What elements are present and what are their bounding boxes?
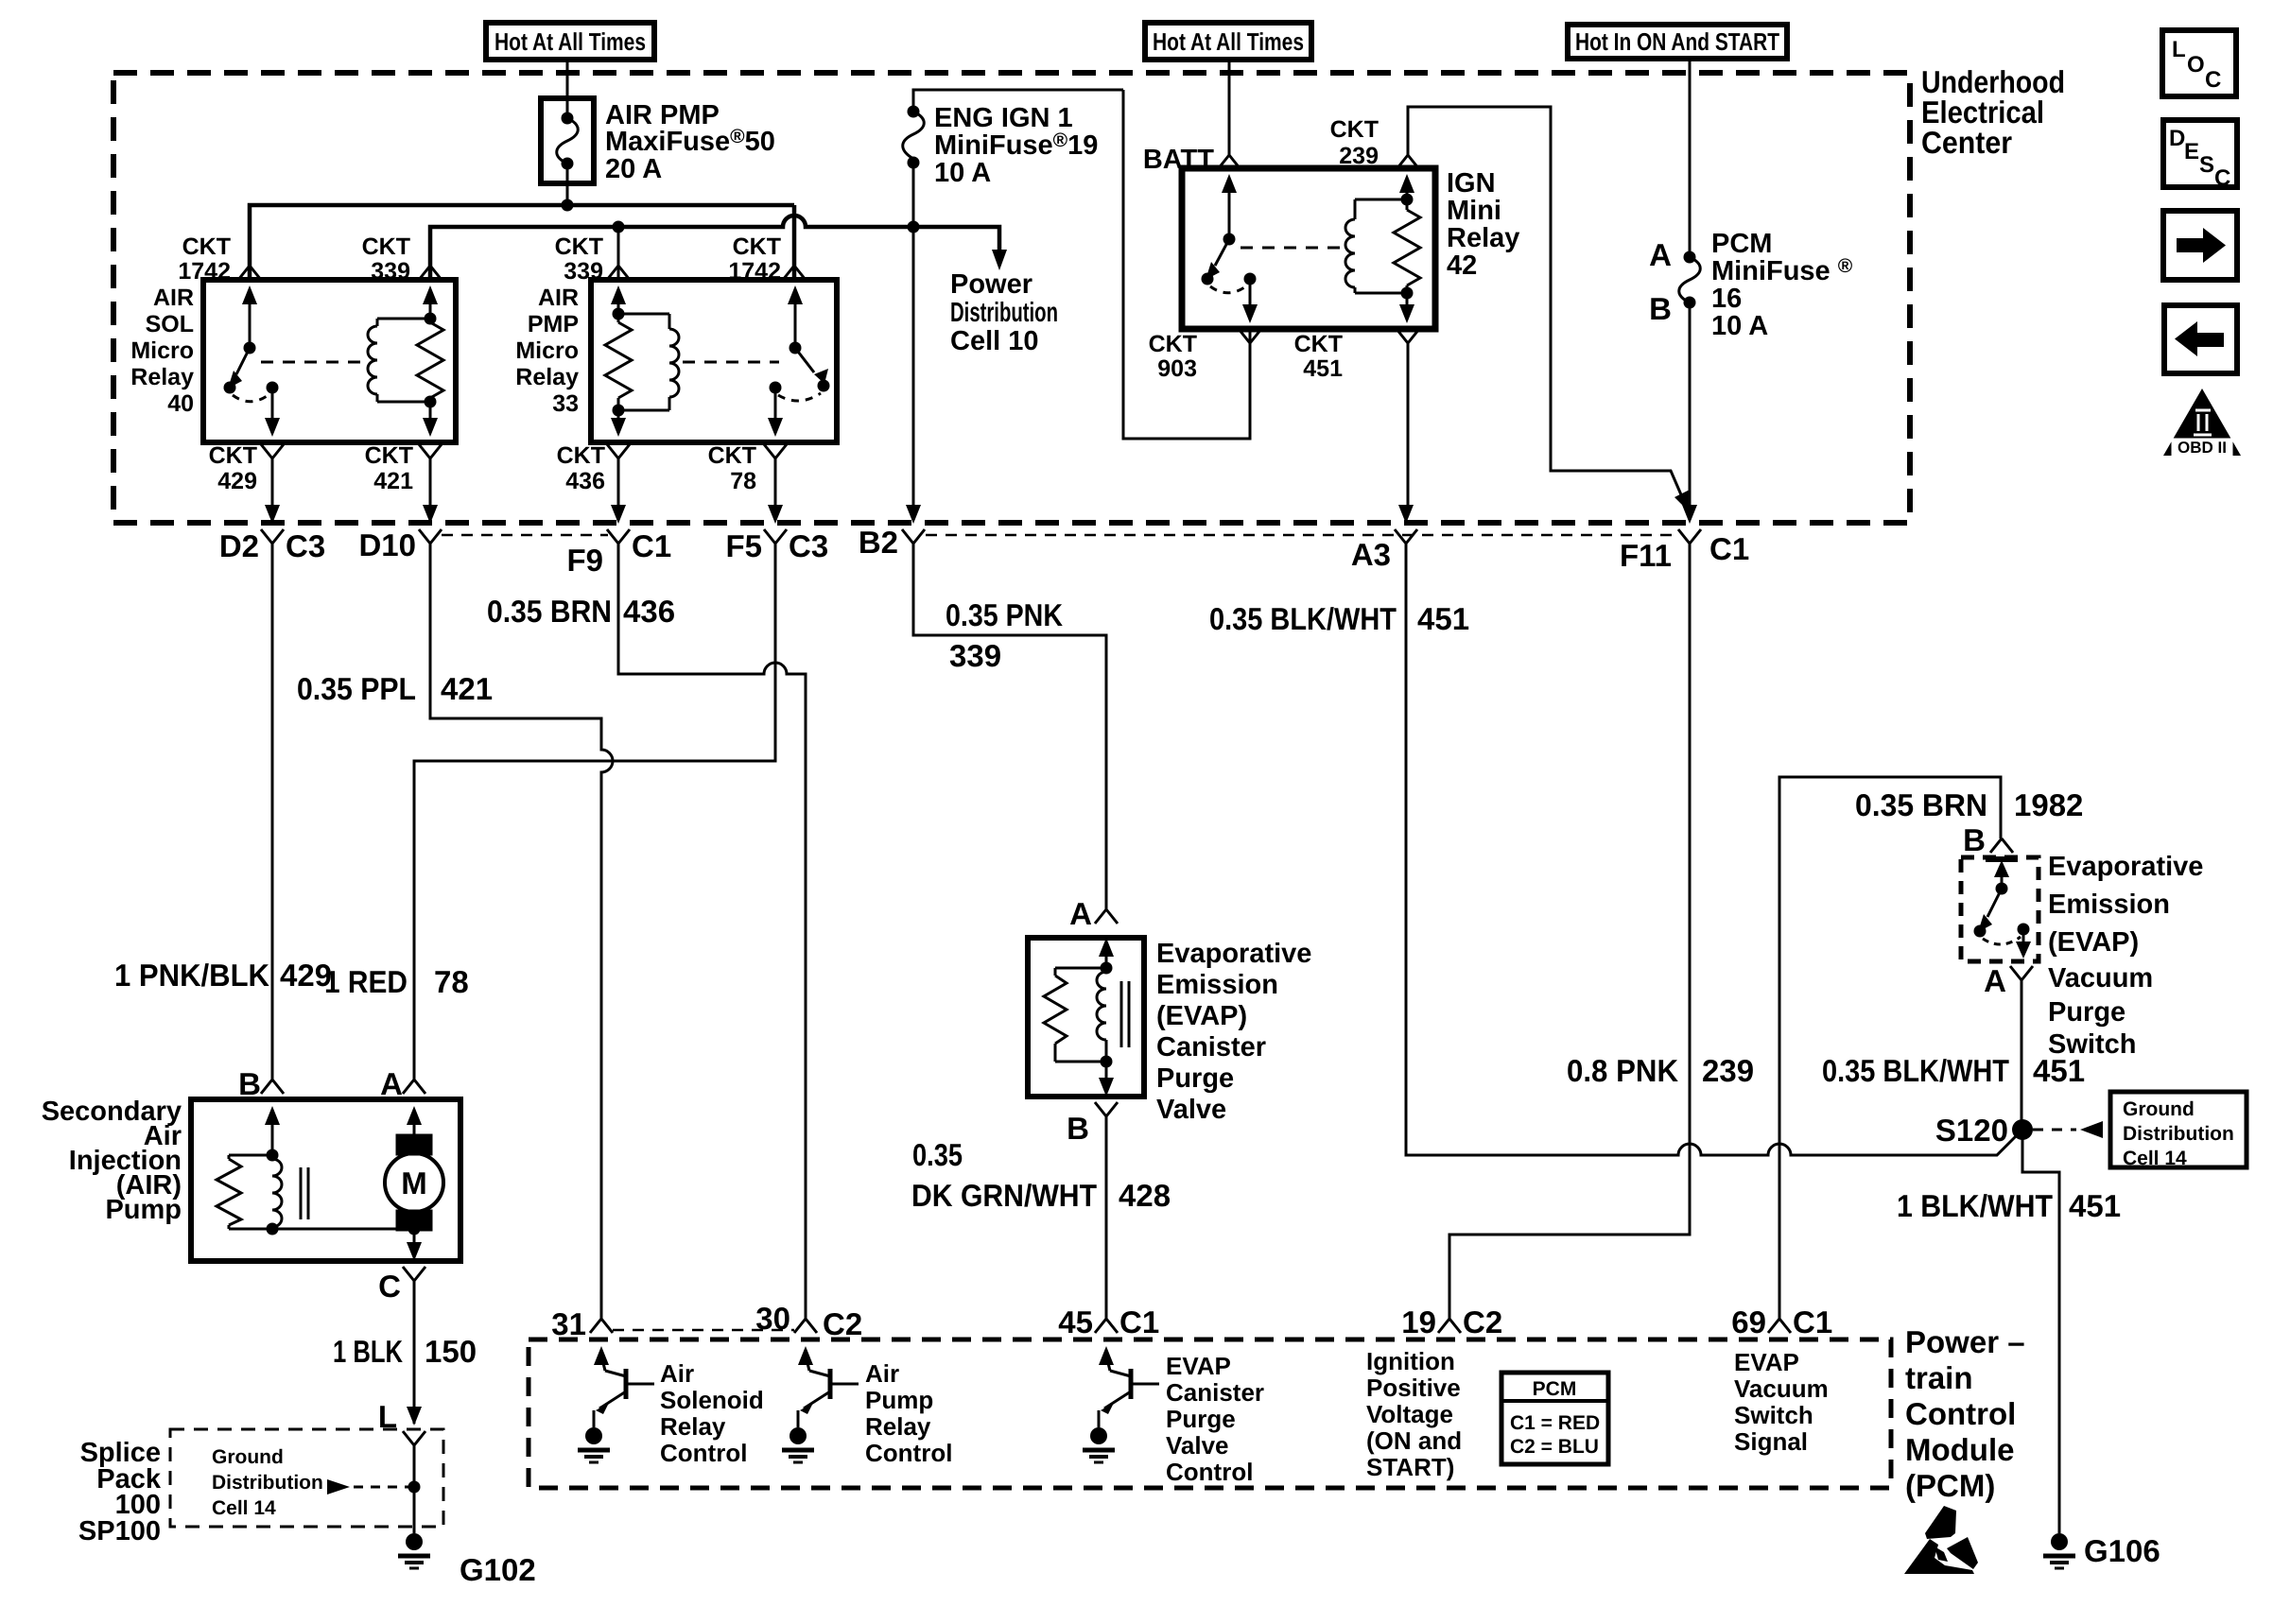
svg-text:Solenoid: Solenoid <box>660 1386 764 1414</box>
svg-text:Canister: Canister <box>1166 1378 1264 1407</box>
svg-text:Hot At All Times: Hot At All Times <box>1153 27 1304 56</box>
svg-text:Mini: Mini <box>1447 196 1501 226</box>
svg-text:1 BLK: 1 BLK <box>333 1334 403 1369</box>
svg-text:Hot In ON And START: Hot In ON And START <box>1575 27 1779 56</box>
svg-text:M: M <box>401 1166 427 1201</box>
svg-text:F5: F5 <box>725 528 762 563</box>
svg-text:Relay: Relay <box>130 364 194 390</box>
svg-text:A3: A3 <box>1351 537 1391 572</box>
svg-text:E: E <box>2184 139 2199 164</box>
svg-text:EVAP: EVAP <box>1734 1348 1799 1376</box>
svg-text:0.35 PPL: 0.35 PPL <box>297 671 416 706</box>
svg-text:B: B <box>1067 1111 1089 1146</box>
svg-text:ENG IGN 1: ENG IGN 1 <box>934 103 1073 133</box>
svg-text:Air: Air <box>865 1359 899 1388</box>
svg-text:B: B <box>1649 291 1672 326</box>
svg-text:Ground: Ground <box>212 1446 284 1468</box>
svg-text:10 A: 10 A <box>934 158 991 188</box>
svg-text:CKT: CKT <box>1330 116 1379 143</box>
svg-text:CKT: CKT <box>1149 331 1197 357</box>
svg-text:Control: Control <box>1166 1458 1253 1486</box>
svg-text:CKT: CKT <box>557 442 605 469</box>
svg-text:OBD II: OBD II <box>2178 439 2227 457</box>
svg-text:428: 428 <box>1119 1178 1171 1213</box>
svg-text:IGN: IGN <box>1447 168 1496 199</box>
svg-text:Pump: Pump <box>105 1195 182 1225</box>
svg-text:C1: C1 <box>632 528 671 563</box>
svg-text:Center: Center <box>1921 125 2012 160</box>
svg-text:Cell 14: Cell 14 <box>2123 1148 2187 1169</box>
svg-text:0.35 BLK/WHT: 0.35 BLK/WHT <box>1822 1053 2009 1088</box>
svg-text:Air: Air <box>660 1359 694 1388</box>
svg-text:DK GRN/WHT: DK GRN/WHT <box>911 1178 1097 1213</box>
svg-text:Valve: Valve <box>1166 1431 1229 1460</box>
svg-text:436: 436 <box>565 468 605 494</box>
svg-text:451: 451 <box>1417 601 1469 636</box>
svg-text:Purge: Purge <box>2048 997 2126 1028</box>
svg-text:0.8 PNK: 0.8 PNK <box>1567 1053 1678 1088</box>
svg-text:429: 429 <box>217 468 257 494</box>
svg-text:G102: G102 <box>460 1552 536 1587</box>
svg-text:CKT: CKT <box>708 442 756 469</box>
svg-text:CKT: CKT <box>182 233 231 260</box>
svg-text:0.35 BRN: 0.35 BRN <box>1855 787 1987 822</box>
svg-text:40: 40 <box>167 390 194 417</box>
svg-text:F11: F11 <box>1620 538 1672 573</box>
svg-text:Signal: Signal <box>1734 1427 1808 1456</box>
svg-text:16: 16 <box>1711 284 1742 314</box>
svg-text:Voltage: Voltage <box>1366 1400 1453 1428</box>
svg-text:A: A <box>1069 896 1092 931</box>
svg-text:436: 436 <box>623 594 675 629</box>
svg-text:Distribution: Distribution <box>950 298 1058 328</box>
svg-text:31: 31 <box>551 1306 586 1341</box>
svg-text:Relay: Relay <box>660 1412 726 1441</box>
svg-text:Switch: Switch <box>1734 1401 1813 1429</box>
svg-text:SOL: SOL <box>146 311 194 337</box>
svg-text:Pump: Pump <box>865 1386 933 1414</box>
svg-text:0.35 BLK/WHT: 0.35 BLK/WHT <box>1209 601 1397 636</box>
svg-text:903: 903 <box>1157 355 1197 382</box>
svg-text:421: 421 <box>373 468 413 494</box>
svg-text:Evaporative: Evaporative <box>2048 852 2203 882</box>
svg-text:C1: C1 <box>1119 1304 1159 1339</box>
svg-text:421: 421 <box>441 671 493 706</box>
svg-text:C1: C1 <box>1793 1304 1832 1339</box>
svg-text:Ignition: Ignition <box>1366 1347 1455 1375</box>
svg-text:S: S <box>2199 152 2214 178</box>
svg-text:Vacuum: Vacuum <box>2048 963 2153 993</box>
svg-text:C3: C3 <box>789 528 828 563</box>
svg-text:Canister: Canister <box>1156 1032 1266 1063</box>
svg-text:CKT: CKT <box>362 233 410 260</box>
svg-text:(EVAP): (EVAP) <box>1156 1001 1247 1031</box>
svg-text:Hot At All Times: Hot At All Times <box>495 27 646 56</box>
svg-text:Power: Power <box>950 269 1032 300</box>
svg-text:MaxiFuse®50: MaxiFuse®50 <box>605 126 775 157</box>
svg-text:CKT: CKT <box>365 442 413 469</box>
svg-text:30: 30 <box>755 1301 790 1336</box>
svg-text:33: 33 <box>552 390 579 417</box>
svg-text:Relay: Relay <box>865 1412 931 1441</box>
svg-text:(EVAP): (EVAP) <box>2048 927 2139 958</box>
svg-text:Relay: Relay <box>1447 223 1519 253</box>
svg-text:MiniFuse®19: MiniFuse®19 <box>934 130 1098 161</box>
svg-text:D2: D2 <box>219 528 259 563</box>
svg-text:MiniFuse ®: MiniFuse ® <box>1711 255 1853 286</box>
svg-text:1 RED: 1 RED <box>324 964 408 999</box>
svg-text:(PCM): (PCM) <box>1905 1468 1995 1503</box>
svg-text:C3: C3 <box>286 528 325 563</box>
svg-text:Purge: Purge <box>1156 1063 1234 1094</box>
svg-text:10 A: 10 A <box>1711 311 1768 341</box>
svg-text:339: 339 <box>949 638 1001 673</box>
svg-text:PMP: PMP <box>528 311 579 337</box>
svg-text:69: 69 <box>1731 1304 1766 1339</box>
svg-text:1982: 1982 <box>2014 787 2083 822</box>
svg-text:Control: Control <box>865 1439 952 1467</box>
svg-text:45: 45 <box>1058 1304 1093 1339</box>
svg-text:O: O <box>2187 52 2205 78</box>
svg-text:Module: Module <box>1905 1432 2014 1467</box>
svg-text:0.35 PNK: 0.35 PNK <box>946 597 1063 632</box>
svg-text:Ground: Ground <box>2123 1098 2195 1120</box>
svg-text:C2: C2 <box>1463 1304 1502 1339</box>
svg-text:A: A <box>1984 963 2006 998</box>
svg-text:AIR: AIR <box>153 285 194 311</box>
svg-text:C: C <box>2205 67 2221 93</box>
svg-text:Distribution: Distribution <box>2123 1123 2234 1145</box>
svg-text:Cell 14: Cell 14 <box>212 1497 276 1519</box>
svg-text:1 PNK/BLK: 1 PNK/BLK <box>114 958 269 993</box>
svg-text:A: A <box>1649 237 1672 272</box>
svg-text:20 A: 20 A <box>605 154 662 184</box>
svg-text:B: B <box>1963 822 1986 857</box>
svg-text:C1 = RED: C1 = RED <box>1510 1412 1600 1434</box>
svg-text:PCM: PCM <box>1711 229 1772 259</box>
svg-text:SP100: SP100 <box>78 1516 161 1546</box>
svg-text:C2: C2 <box>823 1306 862 1341</box>
svg-text:S120: S120 <box>1935 1113 2008 1148</box>
svg-text:CKT: CKT <box>209 442 257 469</box>
svg-text:Positive: Positive <box>1366 1373 1461 1402</box>
svg-text:G106: G106 <box>2084 1533 2160 1568</box>
svg-text:Cell 10: Cell 10 <box>950 326 1039 356</box>
svg-text:451: 451 <box>1303 355 1343 382</box>
svg-text:PCM: PCM <box>1533 1378 1577 1400</box>
svg-text:C2 = BLU: C2 = BLU <box>1510 1436 1599 1458</box>
svg-text:CKT: CKT <box>733 233 781 260</box>
svg-text:Emission: Emission <box>2048 890 2170 920</box>
svg-text:C: C <box>378 1269 401 1304</box>
svg-text:D10: D10 <box>358 527 416 562</box>
svg-text:78: 78 <box>730 468 756 494</box>
svg-text:Emission: Emission <box>1156 970 1278 1000</box>
svg-text:0.35 BRN: 0.35 BRN <box>487 594 612 629</box>
svg-text:L: L <box>2172 37 2186 62</box>
svg-text:AIR: AIR <box>538 285 579 311</box>
svg-text:train: train <box>1905 1360 1973 1395</box>
svg-text:A: A <box>380 1066 403 1101</box>
svg-text:Micro: Micro <box>130 337 194 364</box>
svg-text:B2: B2 <box>859 525 898 560</box>
svg-text:F9: F9 <box>566 543 603 578</box>
svg-text:42: 42 <box>1447 251 1477 281</box>
svg-text:Distribution: Distribution <box>212 1472 323 1494</box>
svg-text:1 BLK/WHT: 1 BLK/WHT <box>1897 1188 2053 1223</box>
svg-text:Control: Control <box>660 1439 747 1467</box>
svg-text:451: 451 <box>2033 1053 2085 1088</box>
svg-text:EVAP: EVAP <box>1166 1352 1231 1380</box>
svg-text:Purge: Purge <box>1166 1405 1236 1433</box>
svg-text:CKT: CKT <box>555 233 603 260</box>
svg-text:0.35: 0.35 <box>912 1137 963 1172</box>
svg-text:Micro: Micro <box>515 337 579 364</box>
svg-text:B: B <box>238 1066 261 1101</box>
svg-text:C1: C1 <box>1709 531 1749 566</box>
svg-text:Evaporative: Evaporative <box>1156 939 1311 969</box>
svg-text:START): START) <box>1366 1453 1454 1481</box>
svg-text:Vacuum: Vacuum <box>1734 1374 1829 1403</box>
svg-text:Power –: Power – <box>1905 1324 2025 1359</box>
svg-text:Valve: Valve <box>1156 1095 1226 1125</box>
svg-text:Control: Control <box>1905 1396 2016 1431</box>
svg-text:CKT: CKT <box>1294 331 1343 357</box>
svg-text:Relay: Relay <box>515 364 579 390</box>
svg-text:19: 19 <box>1401 1304 1436 1339</box>
svg-text:239: 239 <box>1702 1053 1754 1088</box>
svg-text:D: D <box>2169 126 2185 151</box>
svg-text:451: 451 <box>2069 1188 2121 1223</box>
svg-text:C: C <box>2214 165 2230 191</box>
svg-text:(ON and: (ON and <box>1366 1426 1462 1455</box>
svg-text:78: 78 <box>434 964 469 999</box>
svg-text:150: 150 <box>425 1334 477 1369</box>
